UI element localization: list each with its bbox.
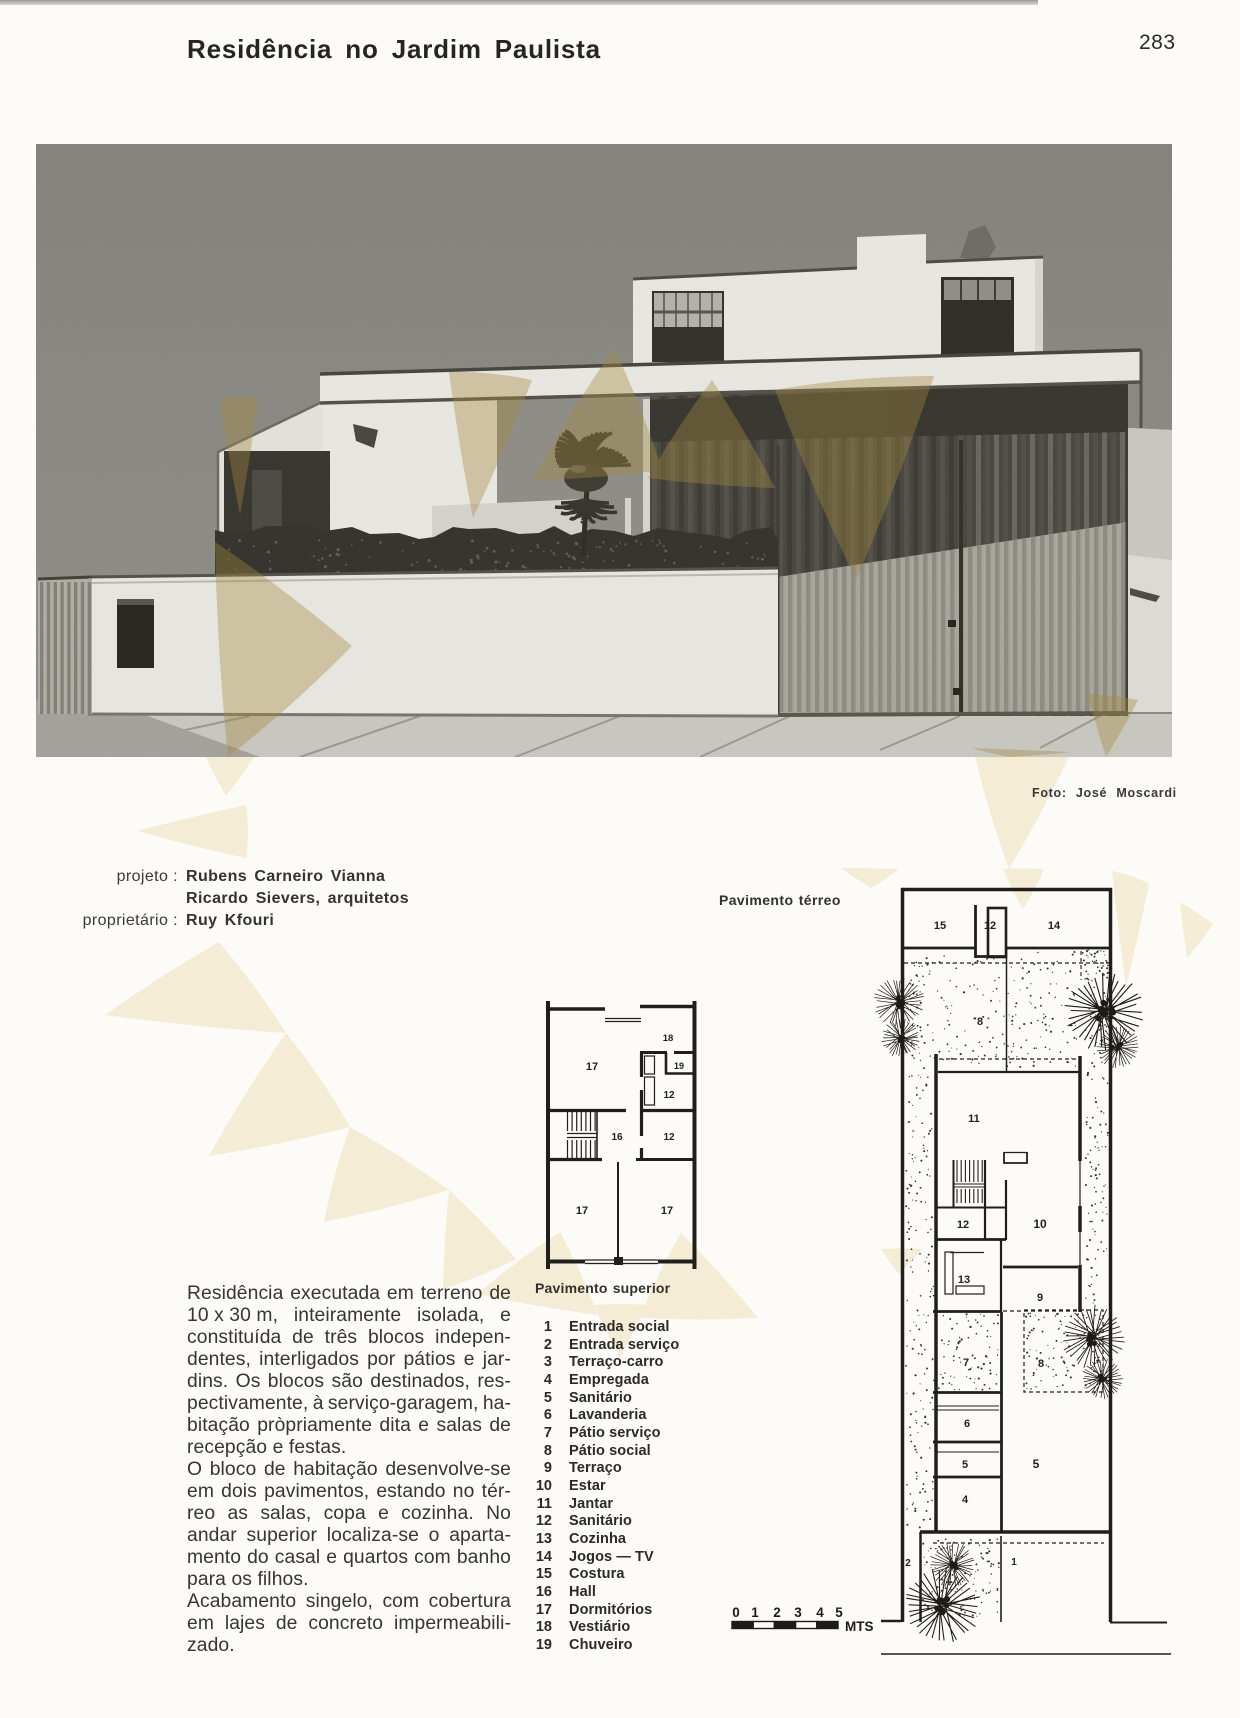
svg-text:18: 18	[663, 1033, 674, 1044]
svg-text:5: 5	[962, 1459, 968, 1471]
svg-text:12: 12	[663, 1090, 675, 1101]
svg-text:19: 19	[674, 1061, 684, 1071]
svg-text:4: 4	[962, 1494, 969, 1506]
svg-text:8: 8	[1038, 1358, 1044, 1370]
svg-text:6: 6	[964, 1418, 970, 1430]
svg-text:4: 4	[816, 1605, 824, 1620]
svg-text:1: 1	[1011, 1557, 1017, 1568]
svg-text:11: 11	[968, 1113, 980, 1125]
svg-text:2: 2	[905, 1558, 911, 1569]
svg-text:12: 12	[663, 1132, 675, 1143]
svg-text:2: 2	[773, 1605, 781, 1620]
svg-text:17: 17	[586, 1061, 598, 1073]
svg-text:8: 8	[977, 1016, 983, 1028]
svg-text:5: 5	[835, 1605, 843, 1620]
svg-text:10: 10	[1033, 1217, 1047, 1231]
svg-text:14: 14	[1048, 920, 1061, 932]
svg-text:17: 17	[576, 1205, 588, 1217]
svg-text:7: 7	[963, 1357, 969, 1369]
svg-text:12: 12	[984, 920, 996, 932]
svg-text:16: 16	[611, 1132, 623, 1143]
svg-text:9: 9	[1037, 1292, 1043, 1304]
svg-text:12: 12	[957, 1219, 969, 1231]
svg-text:13: 13	[958, 1274, 970, 1286]
svg-text:3: 3	[794, 1605, 802, 1620]
svg-text:17: 17	[661, 1205, 673, 1217]
svg-text:5: 5	[1033, 1457, 1040, 1471]
svg-text:MTS: MTS	[845, 1619, 874, 1634]
svg-text:15: 15	[934, 920, 946, 932]
svg-text:1: 1	[751, 1605, 759, 1620]
